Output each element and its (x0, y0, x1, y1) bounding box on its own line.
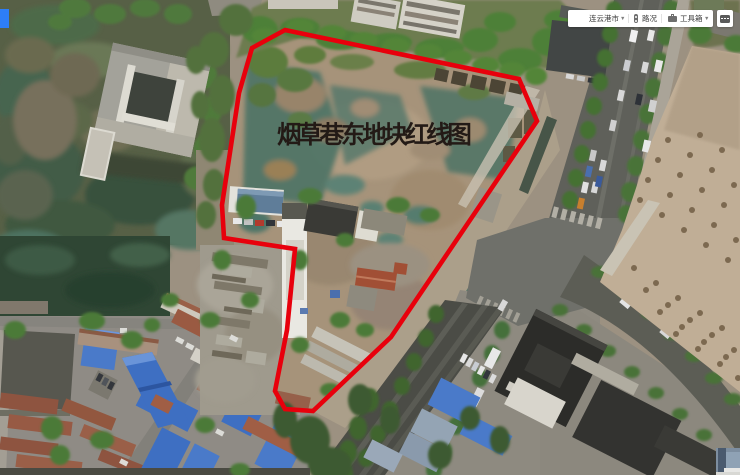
svg-text:烟草巷东地块红线图: 烟草巷东地块红线图 (277, 120, 470, 149)
